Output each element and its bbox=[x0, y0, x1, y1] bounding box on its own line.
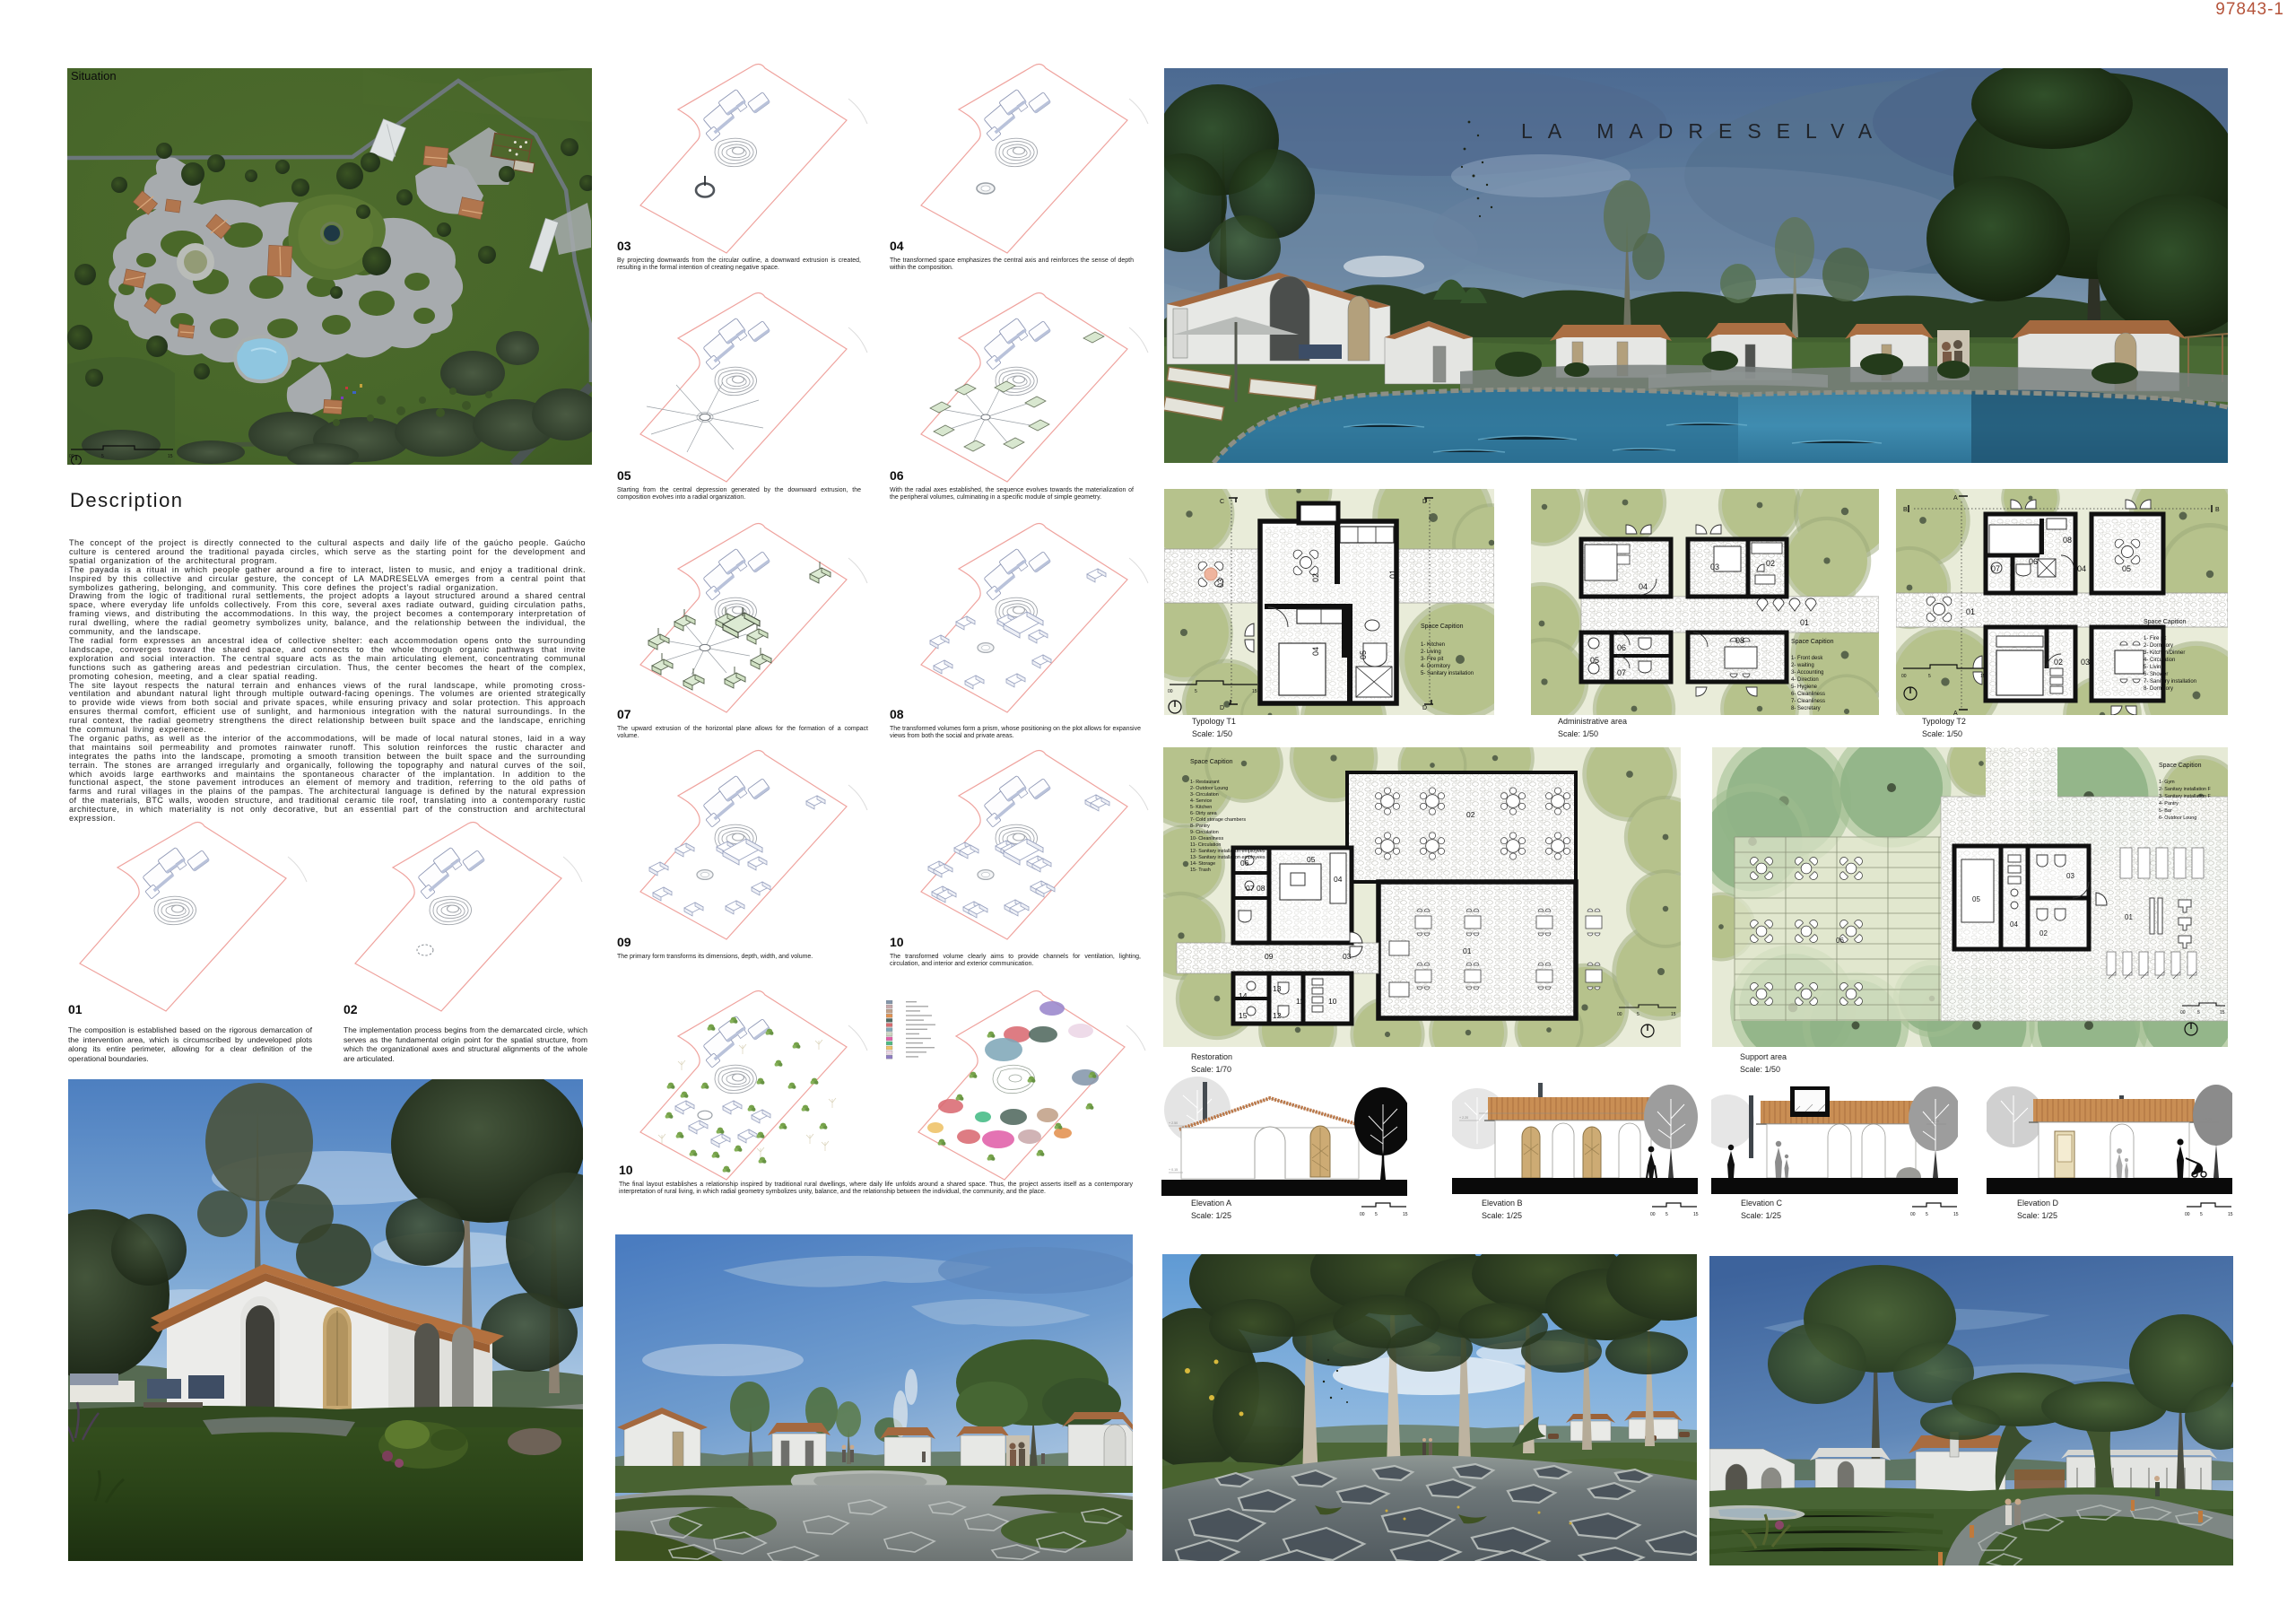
svg-text:15: 15 bbox=[1239, 1011, 1248, 1020]
svg-text:Space Capition: Space Capition bbox=[1190, 759, 1233, 765]
svg-text:1- Fire pit: 1- Fire pit bbox=[2144, 636, 2167, 641]
svg-text:04: 04 bbox=[2077, 564, 2086, 573]
svg-text:14- Storage: 14- Storage bbox=[1190, 861, 1215, 867]
svg-text:2- waiting: 2- waiting bbox=[1791, 663, 1814, 668]
svg-text:7- Cleanliness: 7- Cleanliness bbox=[1791, 699, 1825, 704]
svg-text:5- Sanitary installation: 5- Sanitary installation bbox=[1421, 671, 1474, 676]
svg-text:Space Capition: Space Capition bbox=[1421, 624, 1464, 630]
svg-text:01: 01 bbox=[1463, 946, 1472, 955]
svg-text:6- Outdoor Loung: 6- Outdoor Loung bbox=[2159, 815, 2196, 821]
svg-text:02: 02 bbox=[1311, 573, 1320, 582]
svg-text:2- Dormitory: 2- Dormitory bbox=[2144, 643, 2173, 649]
svg-text:15: 15 bbox=[1693, 1212, 1699, 1217]
svg-text:2- Sanitary installation F: 2- Sanitary installation F bbox=[2159, 787, 2212, 792]
svg-text:06: 06 bbox=[1836, 937, 1844, 945]
svg-text:00: 00 bbox=[1910, 1212, 1916, 1217]
svg-text:6- Shower: 6- Shower bbox=[2144, 672, 2168, 677]
svg-text:01: 01 bbox=[1388, 570, 1397, 579]
svg-text:9- Circulation: 9- Circulation bbox=[1190, 830, 1219, 835]
svg-text:5: 5 bbox=[2197, 1010, 2200, 1016]
svg-text:3- Circulation: 3- Circulation bbox=[1190, 792, 1219, 798]
svg-text:15: 15 bbox=[168, 454, 173, 459]
svg-text:5: 5 bbox=[1195, 689, 1197, 694]
svg-text:05: 05 bbox=[2122, 564, 2131, 573]
svg-text:00: 00 bbox=[1650, 1212, 1656, 1217]
svg-text:3- Kitchen/Dinner: 3- Kitchen/Dinner bbox=[2144, 650, 2185, 656]
svg-text:11: 11 bbox=[1296, 997, 1304, 1006]
svg-text:3- Sanitary installation F: 3- Sanitary installation F bbox=[2159, 794, 2212, 799]
svg-text:5- Living: 5- Living bbox=[2144, 665, 2164, 670]
svg-text:04: 04 bbox=[1639, 582, 1648, 591]
svg-text:04: 04 bbox=[1311, 647, 1320, 656]
svg-text:4- Circulation: 4- Circulation bbox=[2144, 658, 2175, 663]
svg-text:01: 01 bbox=[2125, 913, 2133, 921]
svg-text:04: 04 bbox=[2010, 920, 2018, 929]
svg-text:14: 14 bbox=[1239, 991, 1248, 1000]
svg-text:Space Capition: Space Capition bbox=[1791, 639, 1834, 645]
svg-text:3- Accounting: 3- Accounting bbox=[1791, 670, 1823, 676]
svg-text:5: 5 bbox=[101, 454, 104, 459]
svg-text:11- Circulation: 11- Circulation bbox=[1190, 842, 1221, 848]
svg-text:03: 03 bbox=[2066, 872, 2074, 880]
svg-text:5: 5 bbox=[1926, 1212, 1928, 1217]
svg-text:00: 00 bbox=[2185, 1212, 2190, 1217]
svg-text:05: 05 bbox=[1590, 656, 1599, 665]
svg-text:5- Hygiene: 5- Hygiene bbox=[1791, 685, 1818, 690]
svg-text:8- Pantry: 8- Pantry bbox=[1190, 824, 1210, 829]
svg-text:+ 2.20: + 2.20 bbox=[1459, 1116, 1468, 1120]
svg-text:03: 03 bbox=[2081, 658, 2090, 667]
svg-text:15: 15 bbox=[1252, 689, 1257, 694]
svg-text:15: 15 bbox=[2228, 1212, 2233, 1217]
svg-text:1- Front desk: 1- Front desk bbox=[1791, 656, 1823, 661]
svg-text:C: C bbox=[1220, 499, 1224, 505]
svg-text:01: 01 bbox=[1966, 607, 1975, 616]
svg-text:6- Cleanliness: 6- Cleanliness bbox=[1791, 692, 1825, 697]
svg-text:+ 2.15: + 2.15 bbox=[2203, 1118, 2212, 1121]
svg-text:15: 15 bbox=[2220, 1010, 2225, 1016]
svg-text:02: 02 bbox=[1766, 559, 1775, 568]
svg-text:12- Sanitary installation empl: 12- Sanitary installation employees F bbox=[1190, 849, 1270, 854]
svg-text:D: D bbox=[1220, 705, 1224, 711]
svg-text:07: 07 bbox=[1617, 668, 1626, 677]
svg-text:+ 2.20: + 2.20 bbox=[1930, 1120, 1939, 1123]
svg-text:LA MADRESELVA: LA MADRESELVA bbox=[1521, 119, 1887, 143]
svg-text:03: 03 bbox=[1710, 562, 1719, 571]
svg-text:2- Outdoor Loung: 2- Outdoor Loung bbox=[1190, 786, 1228, 791]
svg-text:+ 2.50: + 2.50 bbox=[1169, 1121, 1178, 1125]
svg-text:10- Cleanliness: 10- Cleanliness bbox=[1190, 836, 1223, 842]
svg-text:Situation: Situation bbox=[71, 69, 117, 83]
svg-text:5- Kitchen: 5- Kitchen bbox=[1190, 805, 1212, 810]
svg-text:03: 03 bbox=[1343, 952, 1352, 961]
svg-text:15: 15 bbox=[1403, 1212, 1408, 1217]
svg-text:5: 5 bbox=[1637, 1012, 1639, 1017]
svg-text:4- Service: 4- Service bbox=[1190, 798, 1212, 804]
svg-text:1- Restaurant: 1- Restaurant bbox=[1190, 780, 1220, 785]
svg-text:A: A bbox=[1953, 495, 1958, 501]
svg-text:03: 03 bbox=[1216, 579, 1225, 588]
svg-text:15: 15 bbox=[1980, 674, 1986, 679]
svg-text:00: 00 bbox=[1168, 689, 1173, 694]
svg-text:B: B bbox=[1903, 507, 1908, 513]
svg-text:13- Sanitary installation empl: 13- Sanitary installation employees M bbox=[1190, 855, 1271, 860]
svg-text:08: 08 bbox=[2063, 536, 2072, 545]
svg-text:2- Living: 2- Living bbox=[1421, 650, 1441, 655]
svg-text:5: 5 bbox=[2200, 1212, 2203, 1217]
svg-text:08: 08 bbox=[1735, 636, 1744, 645]
svg-text:5- Bar: 5- Bar bbox=[2159, 808, 2172, 814]
svg-text:4- Dormitory: 4- Dormitory bbox=[1421, 664, 1450, 669]
svg-text:7- Cold storage chambers: 7- Cold storage chambers bbox=[1190, 817, 1246, 823]
svg-text:02: 02 bbox=[2039, 929, 2048, 937]
svg-text:D: D bbox=[1422, 705, 1427, 711]
svg-text:02: 02 bbox=[1466, 810, 1475, 819]
svg-text:06: 06 bbox=[1617, 643, 1626, 652]
svg-text:Space Capition: Space Capition bbox=[2159, 763, 2202, 769]
svg-text:07: 07 bbox=[1246, 884, 1255, 893]
svg-text:00: 00 bbox=[1901, 674, 1907, 679]
svg-text:5: 5 bbox=[1665, 1212, 1668, 1217]
svg-text:04: 04 bbox=[1334, 875, 1343, 884]
svg-text:15: 15 bbox=[1671, 1012, 1676, 1017]
svg-text:00: 00 bbox=[1617, 1012, 1622, 1017]
svg-text:15: 15 bbox=[1953, 1212, 1959, 1217]
svg-text:5: 5 bbox=[1375, 1212, 1378, 1217]
svg-text:1- Kitchen: 1- Kitchen bbox=[1421, 642, 1445, 648]
svg-text:7- Sanitary installation: 7- Sanitary installation bbox=[2144, 679, 2196, 685]
svg-text:06: 06 bbox=[2029, 557, 2038, 566]
svg-text:00: 00 bbox=[1360, 1212, 1365, 1217]
svg-text:02: 02 bbox=[2054, 658, 2063, 667]
svg-text:4- Pantry: 4- Pantry bbox=[2159, 801, 2179, 807]
svg-text:15- Trash: 15- Trash bbox=[1190, 868, 1211, 873]
svg-text:Space Capition: Space Capition bbox=[2144, 619, 2187, 625]
svg-text:10: 10 bbox=[1328, 997, 1337, 1006]
svg-text:6- Dirty area: 6- Dirty area bbox=[1190, 811, 1217, 816]
svg-text:01: 01 bbox=[1800, 618, 1809, 627]
svg-text:1- Gym: 1- Gym bbox=[2159, 780, 2175, 785]
svg-text:08: 08 bbox=[1257, 884, 1265, 893]
svg-text:05: 05 bbox=[1307, 855, 1316, 864]
svg-text:5: 5 bbox=[1928, 674, 1931, 679]
svg-text:12: 12 bbox=[1273, 1011, 1282, 1020]
svg-text:05: 05 bbox=[1359, 650, 1368, 659]
svg-text:4- Direction: 4- Direction bbox=[1791, 677, 1819, 683]
svg-text:00: 00 bbox=[2180, 1010, 2186, 1016]
svg-text:07: 07 bbox=[1991, 564, 2000, 573]
svg-text:3- Fire pit: 3- Fire pit bbox=[1421, 657, 1444, 662]
svg-text:8- Secretary: 8- Secretary bbox=[1791, 706, 1821, 711]
svg-text:05: 05 bbox=[1972, 895, 1980, 903]
svg-text:+ 0.15: + 0.15 bbox=[1169, 1168, 1178, 1172]
svg-text:8- Dormitory: 8- Dormitory bbox=[2144, 686, 2173, 692]
svg-text:09: 09 bbox=[1265, 952, 1274, 961]
svg-text:13: 13 bbox=[1273, 984, 1282, 993]
svg-text:B: B bbox=[2215, 507, 2220, 513]
